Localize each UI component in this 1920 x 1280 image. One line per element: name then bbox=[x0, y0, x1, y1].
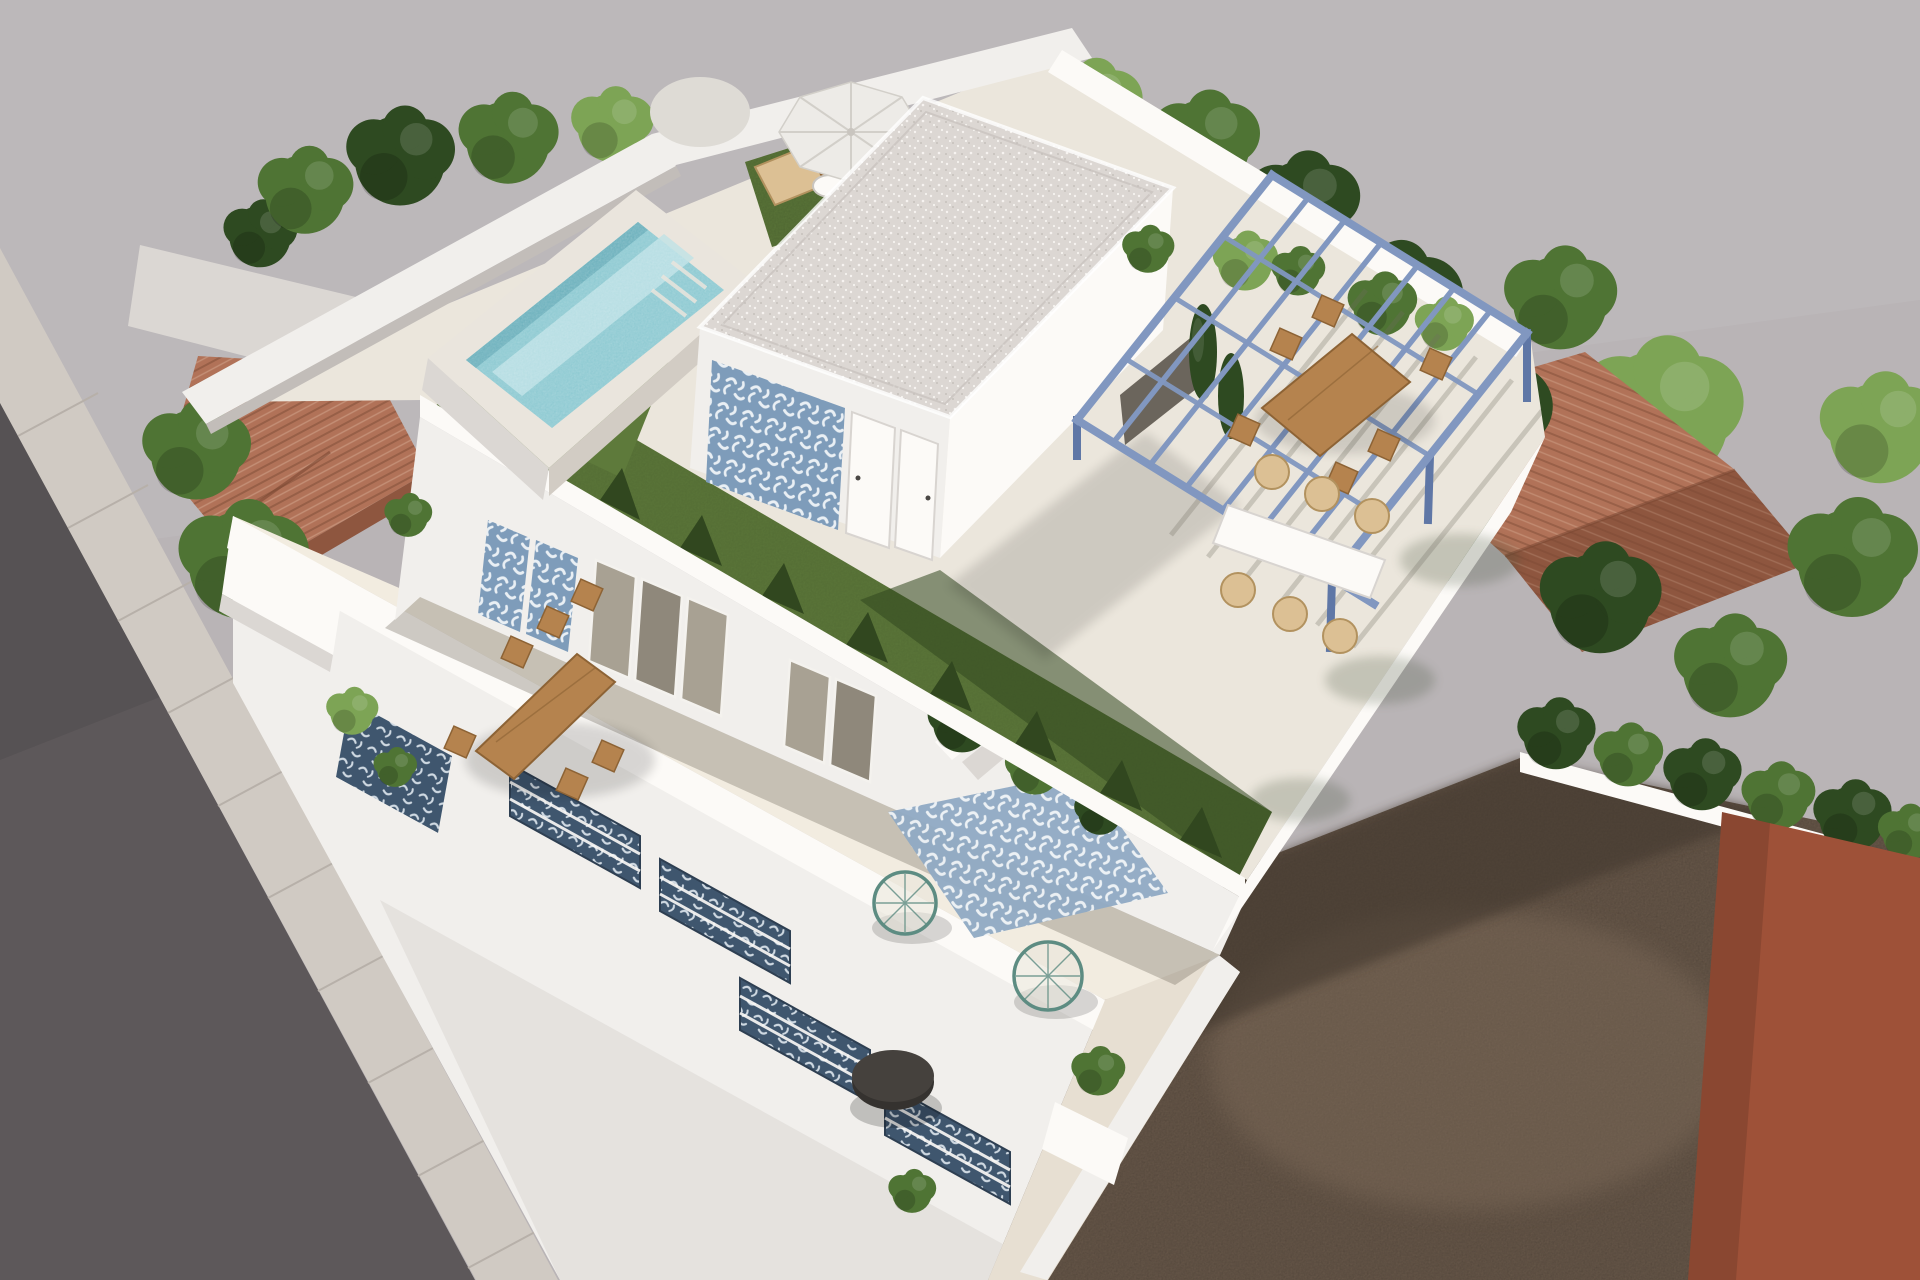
door-handle bbox=[926, 496, 931, 501]
glass-door bbox=[830, 679, 876, 782]
door-handle bbox=[856, 476, 861, 481]
chair-spokes bbox=[876, 874, 934, 932]
glass-door bbox=[784, 660, 830, 763]
glass-door bbox=[589, 560, 636, 678]
pool-house-door bbox=[846, 412, 895, 548]
wicker-chair bbox=[1323, 619, 1357, 653]
glass-door bbox=[635, 579, 682, 697]
wicker-chair bbox=[1355, 499, 1389, 533]
parasol-hub bbox=[847, 128, 855, 136]
wicker-chair bbox=[1255, 455, 1289, 489]
wicker-chair bbox=[1221, 573, 1255, 607]
parasol-back bbox=[650, 77, 750, 147]
round-black-table-top bbox=[852, 1050, 934, 1102]
pool-house-door bbox=[895, 430, 938, 560]
glass-door bbox=[681, 598, 728, 716]
wicker-chair bbox=[1273, 597, 1307, 631]
architectural-render: Aerial 3D architectural rendering of a m… bbox=[0, 0, 1920, 1280]
chair-spokes bbox=[1016, 944, 1080, 1008]
wicker-chair bbox=[1305, 477, 1339, 511]
render-canvas bbox=[0, 0, 1920, 1280]
